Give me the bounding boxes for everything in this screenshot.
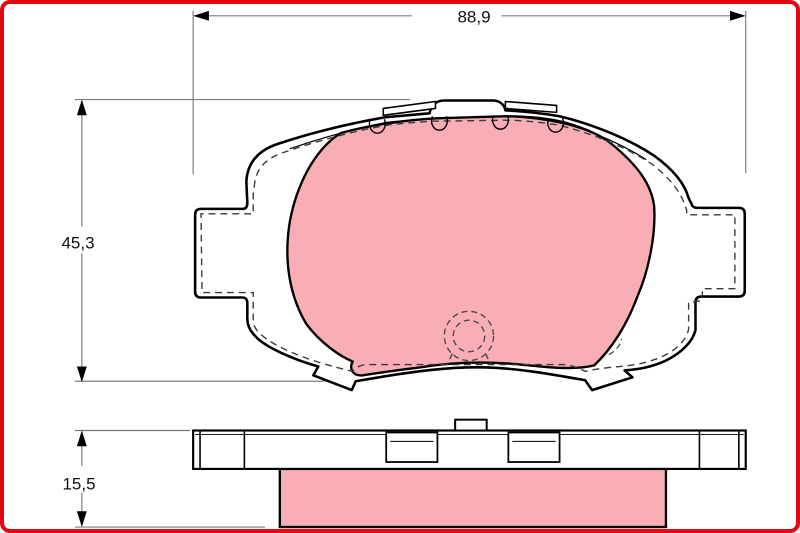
edge-top-tab	[455, 420, 487, 431]
arrow-down2-icon	[77, 511, 87, 527]
edge-friction-material	[280, 469, 666, 527]
dimension-width-label: 88,9	[454, 9, 493, 26]
brake-pad-drawing-canvas: 88,9 45,3 15,5	[0, 0, 800, 533]
arrow-up-icon	[77, 100, 87, 116]
edge-backing-plate	[193, 431, 746, 469]
pad-rear-view	[195, 101, 745, 391]
friction-material	[287, 116, 654, 375]
slot-left	[386, 432, 437, 462]
pad-edge-view	[193, 420, 746, 527]
arrow-right-icon	[730, 11, 746, 21]
arrow-up2-icon	[77, 431, 87, 447]
arrow-down-icon	[77, 366, 87, 382]
dimension-height-label: 45,3	[58, 235, 97, 252]
arrow-left-icon	[193, 11, 209, 21]
technical-drawing	[4, 4, 796, 529]
slot-right	[508, 432, 559, 462]
dimension-thickness-label: 15,5	[59, 476, 98, 493]
